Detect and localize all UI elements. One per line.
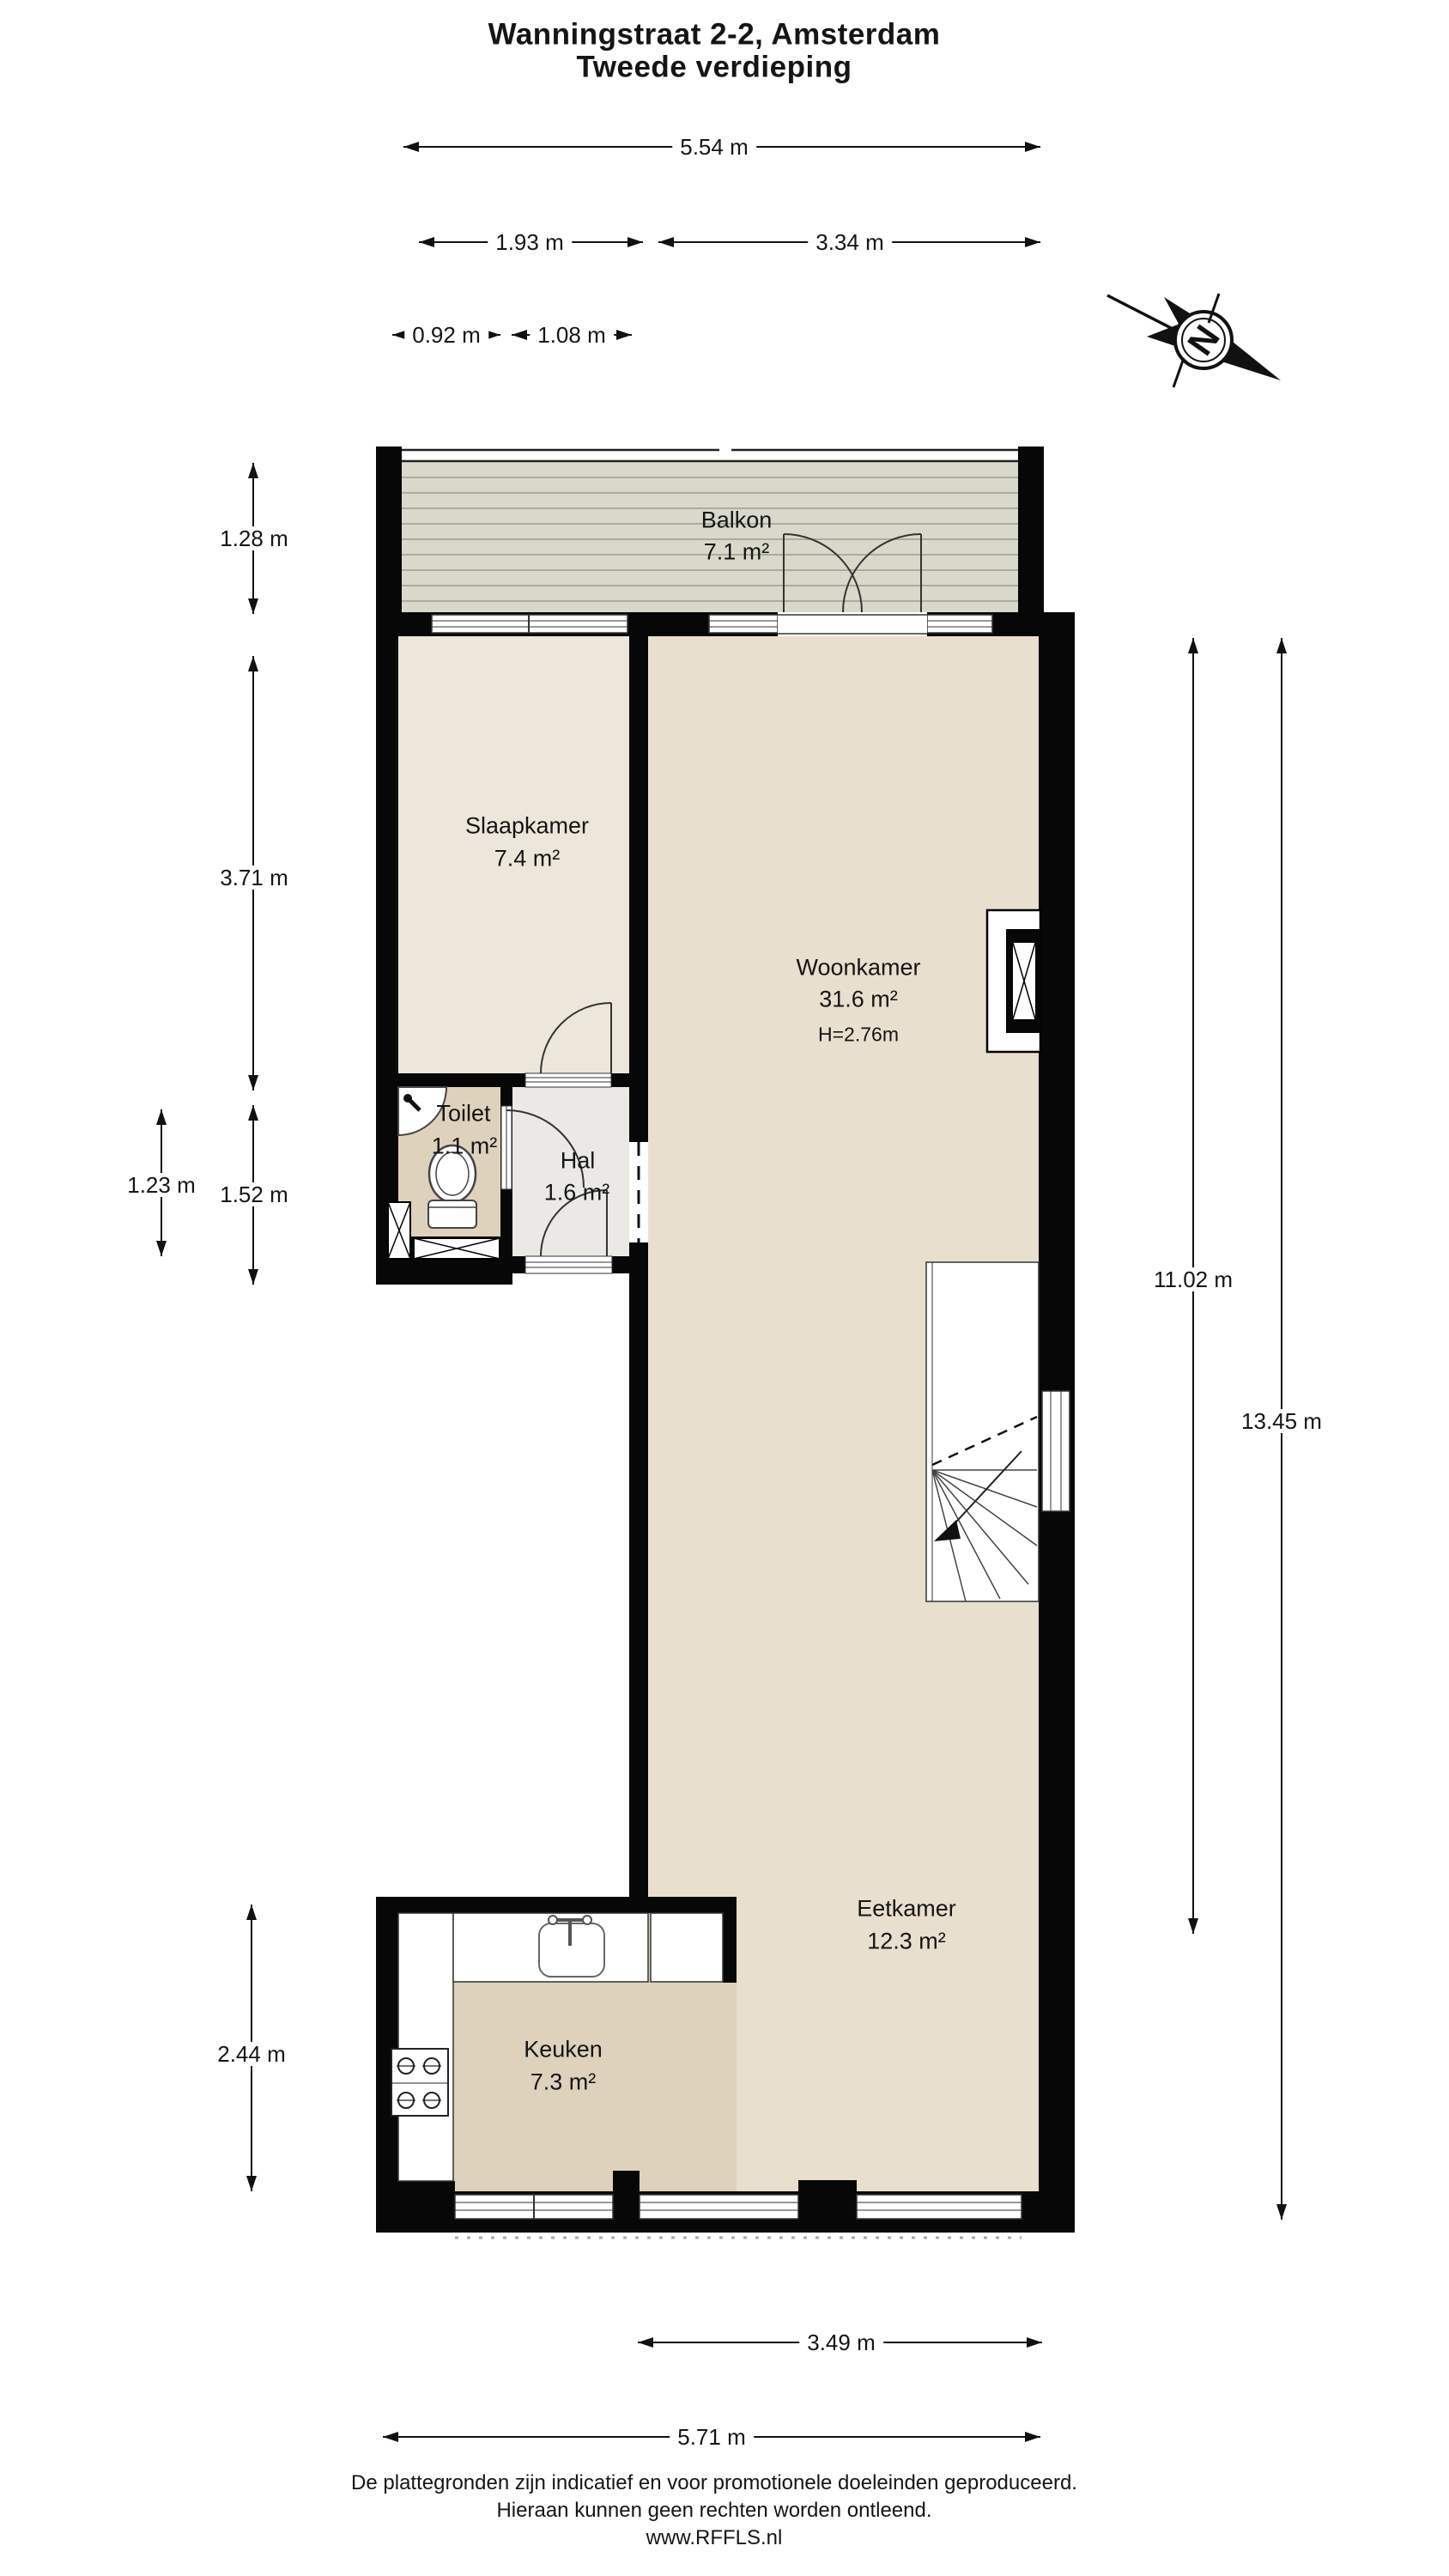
- floor-balkon: [398, 460, 1020, 612]
- window-woonkamer-left: [709, 615, 778, 633]
- dim-interior-length: 11.02 m: [1146, 1267, 1240, 1291]
- room-area-balkon: 7.1 m²: [704, 541, 770, 564]
- dim-top-right: 3.34 m: [808, 230, 892, 254]
- footer-website: www.RFFLS.nl: [646, 2528, 783, 2549]
- threshold-hal-door: [525, 1256, 612, 1273]
- dim-top-total: 5.54 m: [672, 135, 756, 159]
- window-slaapkamer: [432, 615, 627, 633]
- room-label-eetkamer: Eetkamer: [857, 1898, 956, 1921]
- page-subtitle: Tweede verdieping: [577, 52, 852, 82]
- room-area-eetkamer: 12.3 m²: [867, 1930, 946, 1953]
- dim-balcony-depth: 1.28 m: [212, 526, 296, 550]
- room-label-woonkamer: Woonkamer: [796, 957, 920, 980]
- dim-top-left: 1.93 m: [488, 230, 572, 254]
- page-title: Wanningstraat 2-2, Amsterdam: [488, 20, 941, 50]
- dim-keuken-depth: 2.44 m: [209, 2042, 294, 2066]
- footer-disclaimer-line2: Hieraan kunnen geen rechten worden ontle…: [496, 2500, 931, 2521]
- room-ceiling-woonkamer: H=2.76m: [818, 1025, 899, 1045]
- window-stairs: [1042, 1391, 1070, 1511]
- room-label-balkon: Balkon: [701, 509, 773, 532]
- room-area-woonkamer: 31.6 m²: [819, 988, 898, 1012]
- chimney: [987, 910, 1040, 1052]
- room-area-hal: 1.6 m²: [544, 1182, 610, 1205]
- dim-toilet-width: 0.92 m: [404, 323, 488, 347]
- dim-total-length: 13.45 m: [1234, 1409, 1330, 1433]
- room-label-slaapkamer: Slaapkamer: [465, 815, 589, 838]
- shaft-under-toilet: [414, 1238, 500, 1259]
- toilet-door-leaf: [501, 1106, 512, 1189]
- stairs: [926, 1262, 1039, 1601]
- kitchen-sink: [539, 1916, 604, 1977]
- room-label-keuken: Keuken: [524, 2038, 603, 2062]
- opening-hal-woonkamer: [629, 1142, 648, 1242]
- room-label-toilet: Toilet: [436, 1103, 490, 1126]
- balcony-railing: [398, 448, 1020, 461]
- north-arrow-icon: N: [1107, 294, 1281, 387]
- room-label-hal: Hal: [561, 1150, 596, 1173]
- room-area-toilet: 1.1 m²: [432, 1135, 498, 1158]
- room-area-slaapkamer: 7.4 m²: [494, 848, 561, 871]
- dim-bottom-total: 5.71 m: [670, 2425, 754, 2449]
- dim-left-lower: 1.52 m: [212, 1182, 296, 1206]
- dim-toilet-depth: 1.23 m: [119, 1173, 203, 1197]
- threshold-slaapkamer-door: [525, 1073, 611, 1087]
- footer-disclaimer-line1: De plattegronden zijn indicatief en voor…: [351, 2473, 1077, 2494]
- windows-bottom: [455, 2195, 1022, 2219]
- window-woonkamer-right: [927, 615, 992, 633]
- dim-eetkamer-width: 3.49 m: [799, 2330, 883, 2354]
- balcony-door-opening: [778, 612, 927, 636]
- floorplan-page: N: [0, 0, 1449, 2576]
- dim-slaapkamer-depth: 3.71 m: [212, 866, 296, 890]
- dim-hal-width: 1.08 m: [530, 323, 614, 347]
- room-area-keuken: 7.3 m²: [530, 2071, 597, 2094]
- shaft-left: [388, 1202, 410, 1259]
- stove-icon: [391, 2049, 448, 2116]
